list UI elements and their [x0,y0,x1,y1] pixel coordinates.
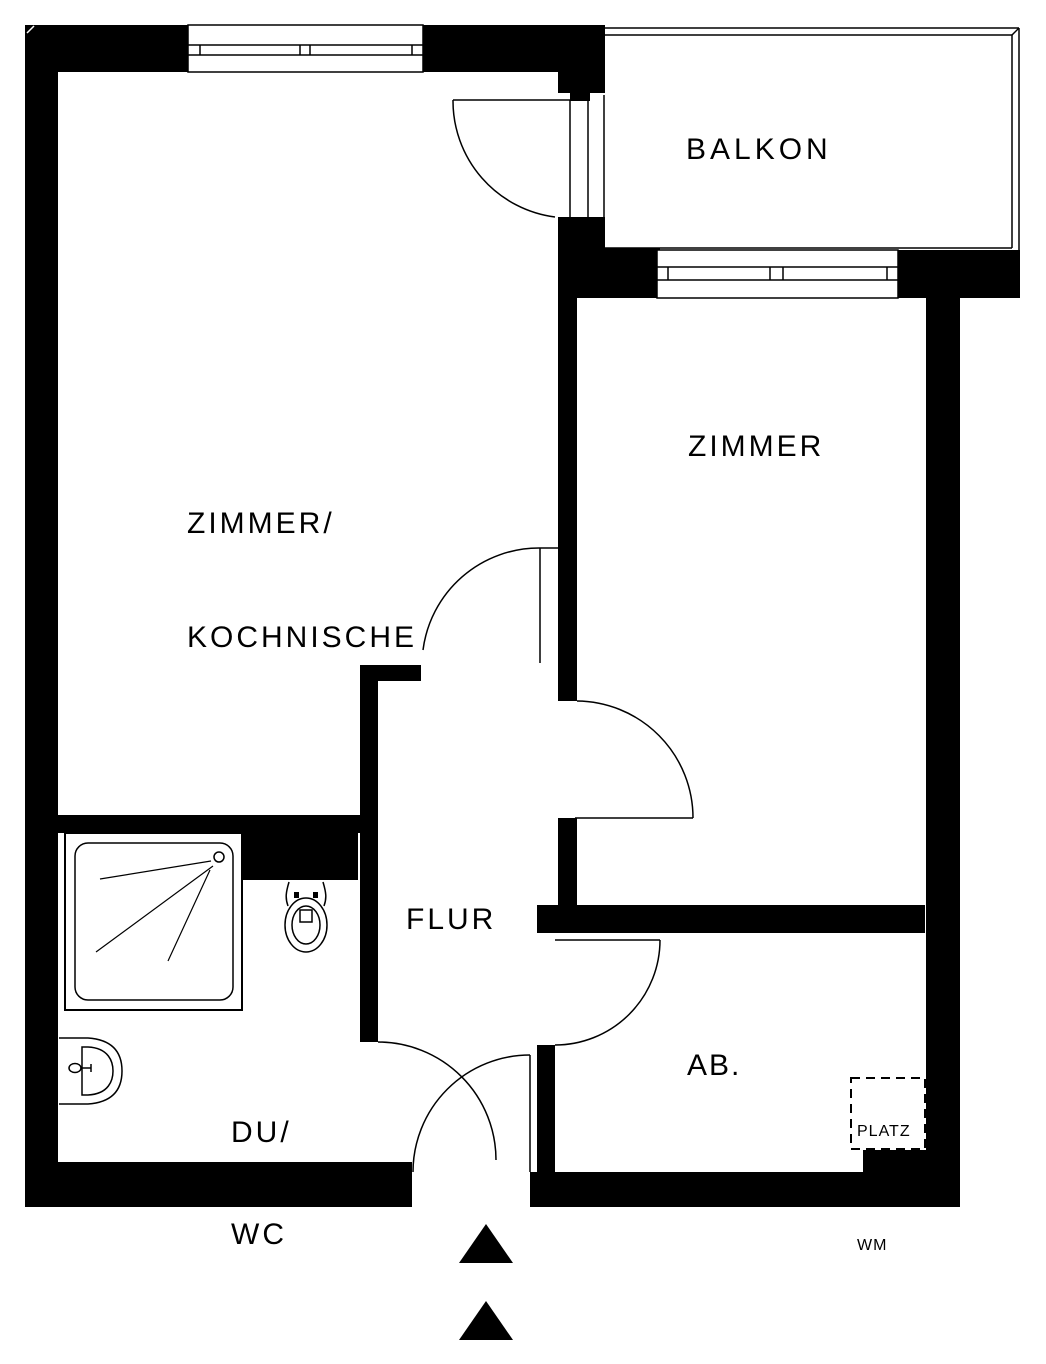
washing-machine-label-line: PLATZ [857,1122,911,1141]
door-swing-arc [423,548,540,650]
door-swing-arc [453,100,555,217]
room-label-zimmer-kochnische: ZIMMER/ KOCHNISCHE [187,429,417,733]
window-zimmer [657,250,898,298]
wall [25,1162,412,1207]
washing-machine-label: PLATZ FÜR WM [857,1084,911,1293]
door-swing-arc [413,1055,530,1172]
wall [537,905,925,933]
wall [537,1045,555,1172]
door-balcony [453,93,604,225]
room-label-zimmer: ZIMMER [688,428,824,466]
wall [558,818,577,905]
room-label-flur: FLUR [406,901,496,939]
wall [58,815,378,833]
entrance-arrow-icon [459,1301,513,1340]
room-label-line: WC [231,1218,292,1252]
room-label-du-wc: DU/ WC [231,1048,292,1320]
shower-tray [65,833,242,1010]
wall [926,298,960,1207]
wall [898,250,1020,298]
wall [558,217,605,298]
window-kochnische [188,25,423,72]
room-label-abstellraum: AB. [687,1047,741,1085]
room-label-line: KOCHNISCHE [187,619,417,657]
door-swing-arc [555,940,660,1045]
room-label-line: ZIMMER/ [187,505,417,543]
entrance-arrow-icon [459,1224,513,1263]
walls [25,25,1020,1207]
door-swing-arc [577,701,693,818]
balcony-corner-chamfer [1012,28,1019,35]
entrance-arrows [459,1224,513,1340]
wall [25,25,188,72]
toilet [285,882,327,952]
washbasin [59,1038,122,1104]
door-zimmer-kochnische [423,548,558,663]
floor-plan: BALKON ZIMMER/ KOCHNISCHE ZIMMER FLUR DU… [0,0,1046,1364]
wall [530,1172,863,1207]
door-entrance [413,1055,530,1172]
wall [558,72,605,93]
door-zimmer [575,701,693,818]
wall [242,833,358,880]
wall [423,25,605,72]
room-label-balkon: BALKON [686,131,832,169]
wall [605,248,660,298]
washing-machine-label-line: WM [857,1236,911,1255]
room-label-line: DU/ [231,1116,292,1150]
wall [25,25,58,1207]
door-abstellraum [555,940,660,1045]
wall [558,298,577,701]
washing-machine-label-line: FÜR [857,1179,911,1198]
